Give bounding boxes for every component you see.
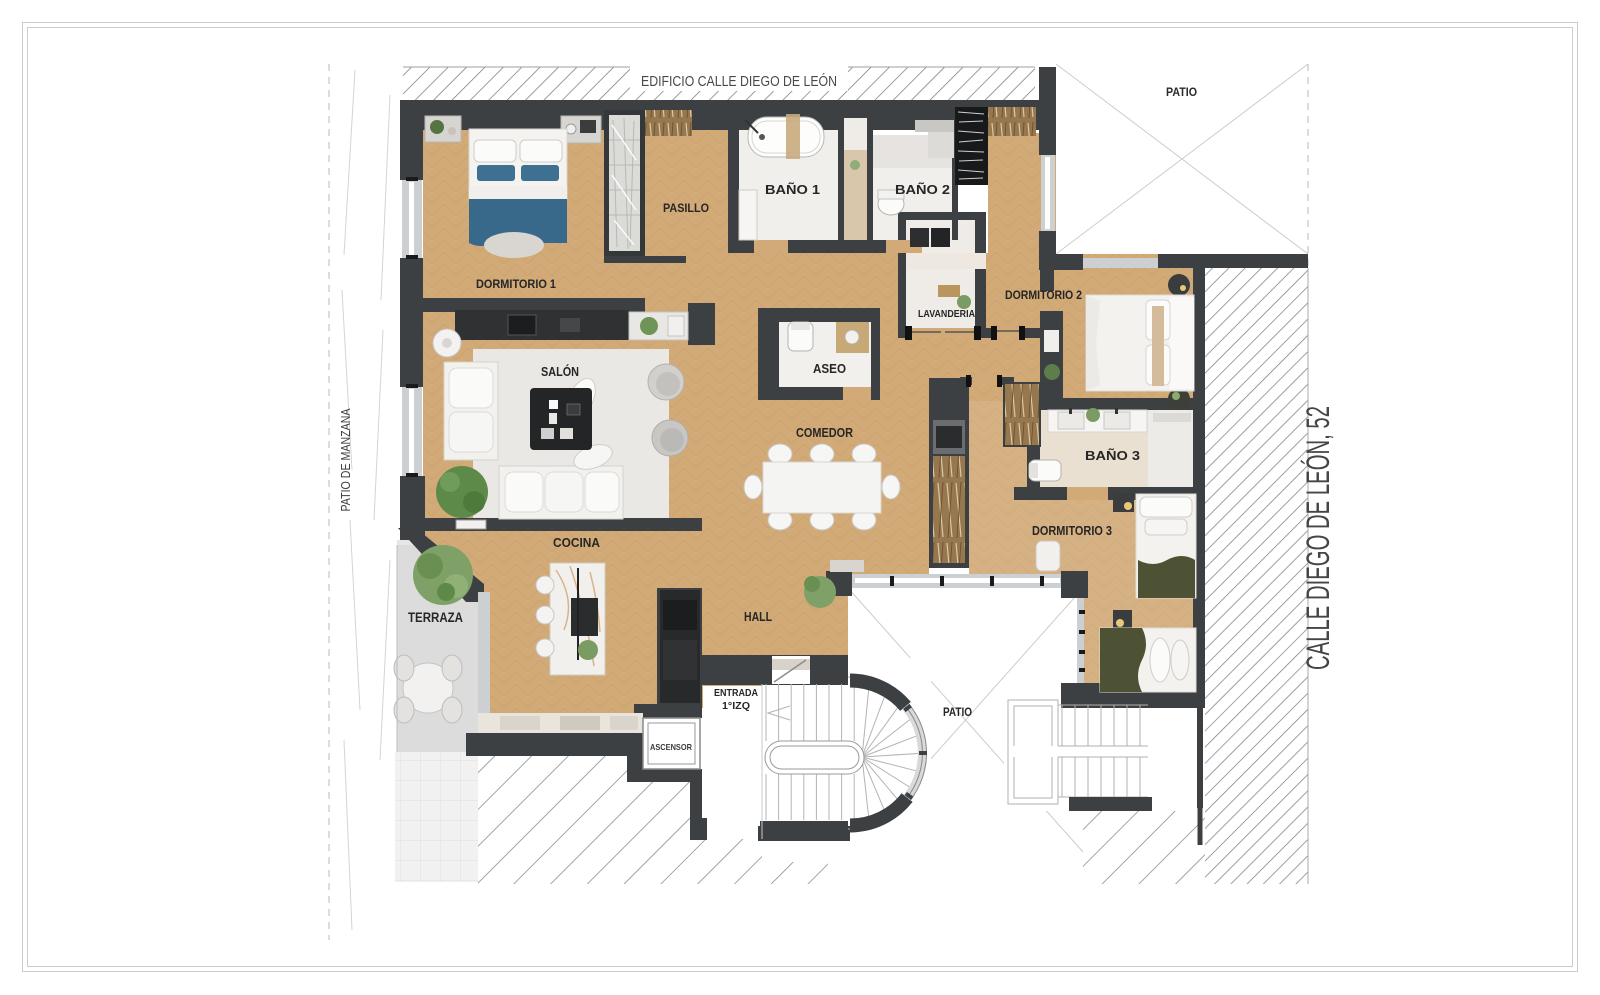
svg-text:DORMITORIO 3: DORMITORIO 3 xyxy=(1032,523,1112,538)
svg-text:BAÑO 3: BAÑO 3 xyxy=(1085,448,1140,463)
svg-text:PATIO: PATIO xyxy=(943,705,972,719)
svg-text:PATIO: PATIO xyxy=(1166,85,1197,99)
svg-text:1°IZQ: 1°IZQ xyxy=(722,701,750,712)
svg-text:HALL: HALL xyxy=(744,610,772,624)
svg-text:ASEO: ASEO xyxy=(813,361,846,376)
svg-text:EDIFICIO CALLE DIEGO DE LEÓN: EDIFICIO CALLE DIEGO DE LEÓN xyxy=(641,73,837,90)
svg-text:BAÑO 1: BAÑO 1 xyxy=(765,182,820,197)
svg-text:LAVANDERIA: LAVANDERIA xyxy=(918,308,975,320)
svg-text:ENTRADA: ENTRADA xyxy=(714,688,758,699)
svg-text:COCINA: COCINA xyxy=(553,536,600,550)
svg-text:SALÓN: SALÓN xyxy=(541,364,579,379)
svg-text:ASCENSOR: ASCENSOR xyxy=(650,742,692,752)
svg-text:CALLE DIEGO DE LEÓN, 52: CALLE DIEGO DE LEÓN, 52 xyxy=(1300,406,1336,670)
svg-text:DORMITORIO 2: DORMITORIO 2 xyxy=(1005,288,1082,302)
svg-text:PASILLO: PASILLO xyxy=(663,201,709,215)
svg-text:COMEDOR: COMEDOR xyxy=(796,425,854,440)
svg-text:TERRAZA: TERRAZA xyxy=(408,610,463,625)
svg-text:PATIO DE MANZANA: PATIO DE MANZANA xyxy=(339,408,353,512)
svg-text:BAÑO 2: BAÑO 2 xyxy=(895,182,950,197)
svg-text:DORMITORIO 1: DORMITORIO 1 xyxy=(476,277,556,291)
